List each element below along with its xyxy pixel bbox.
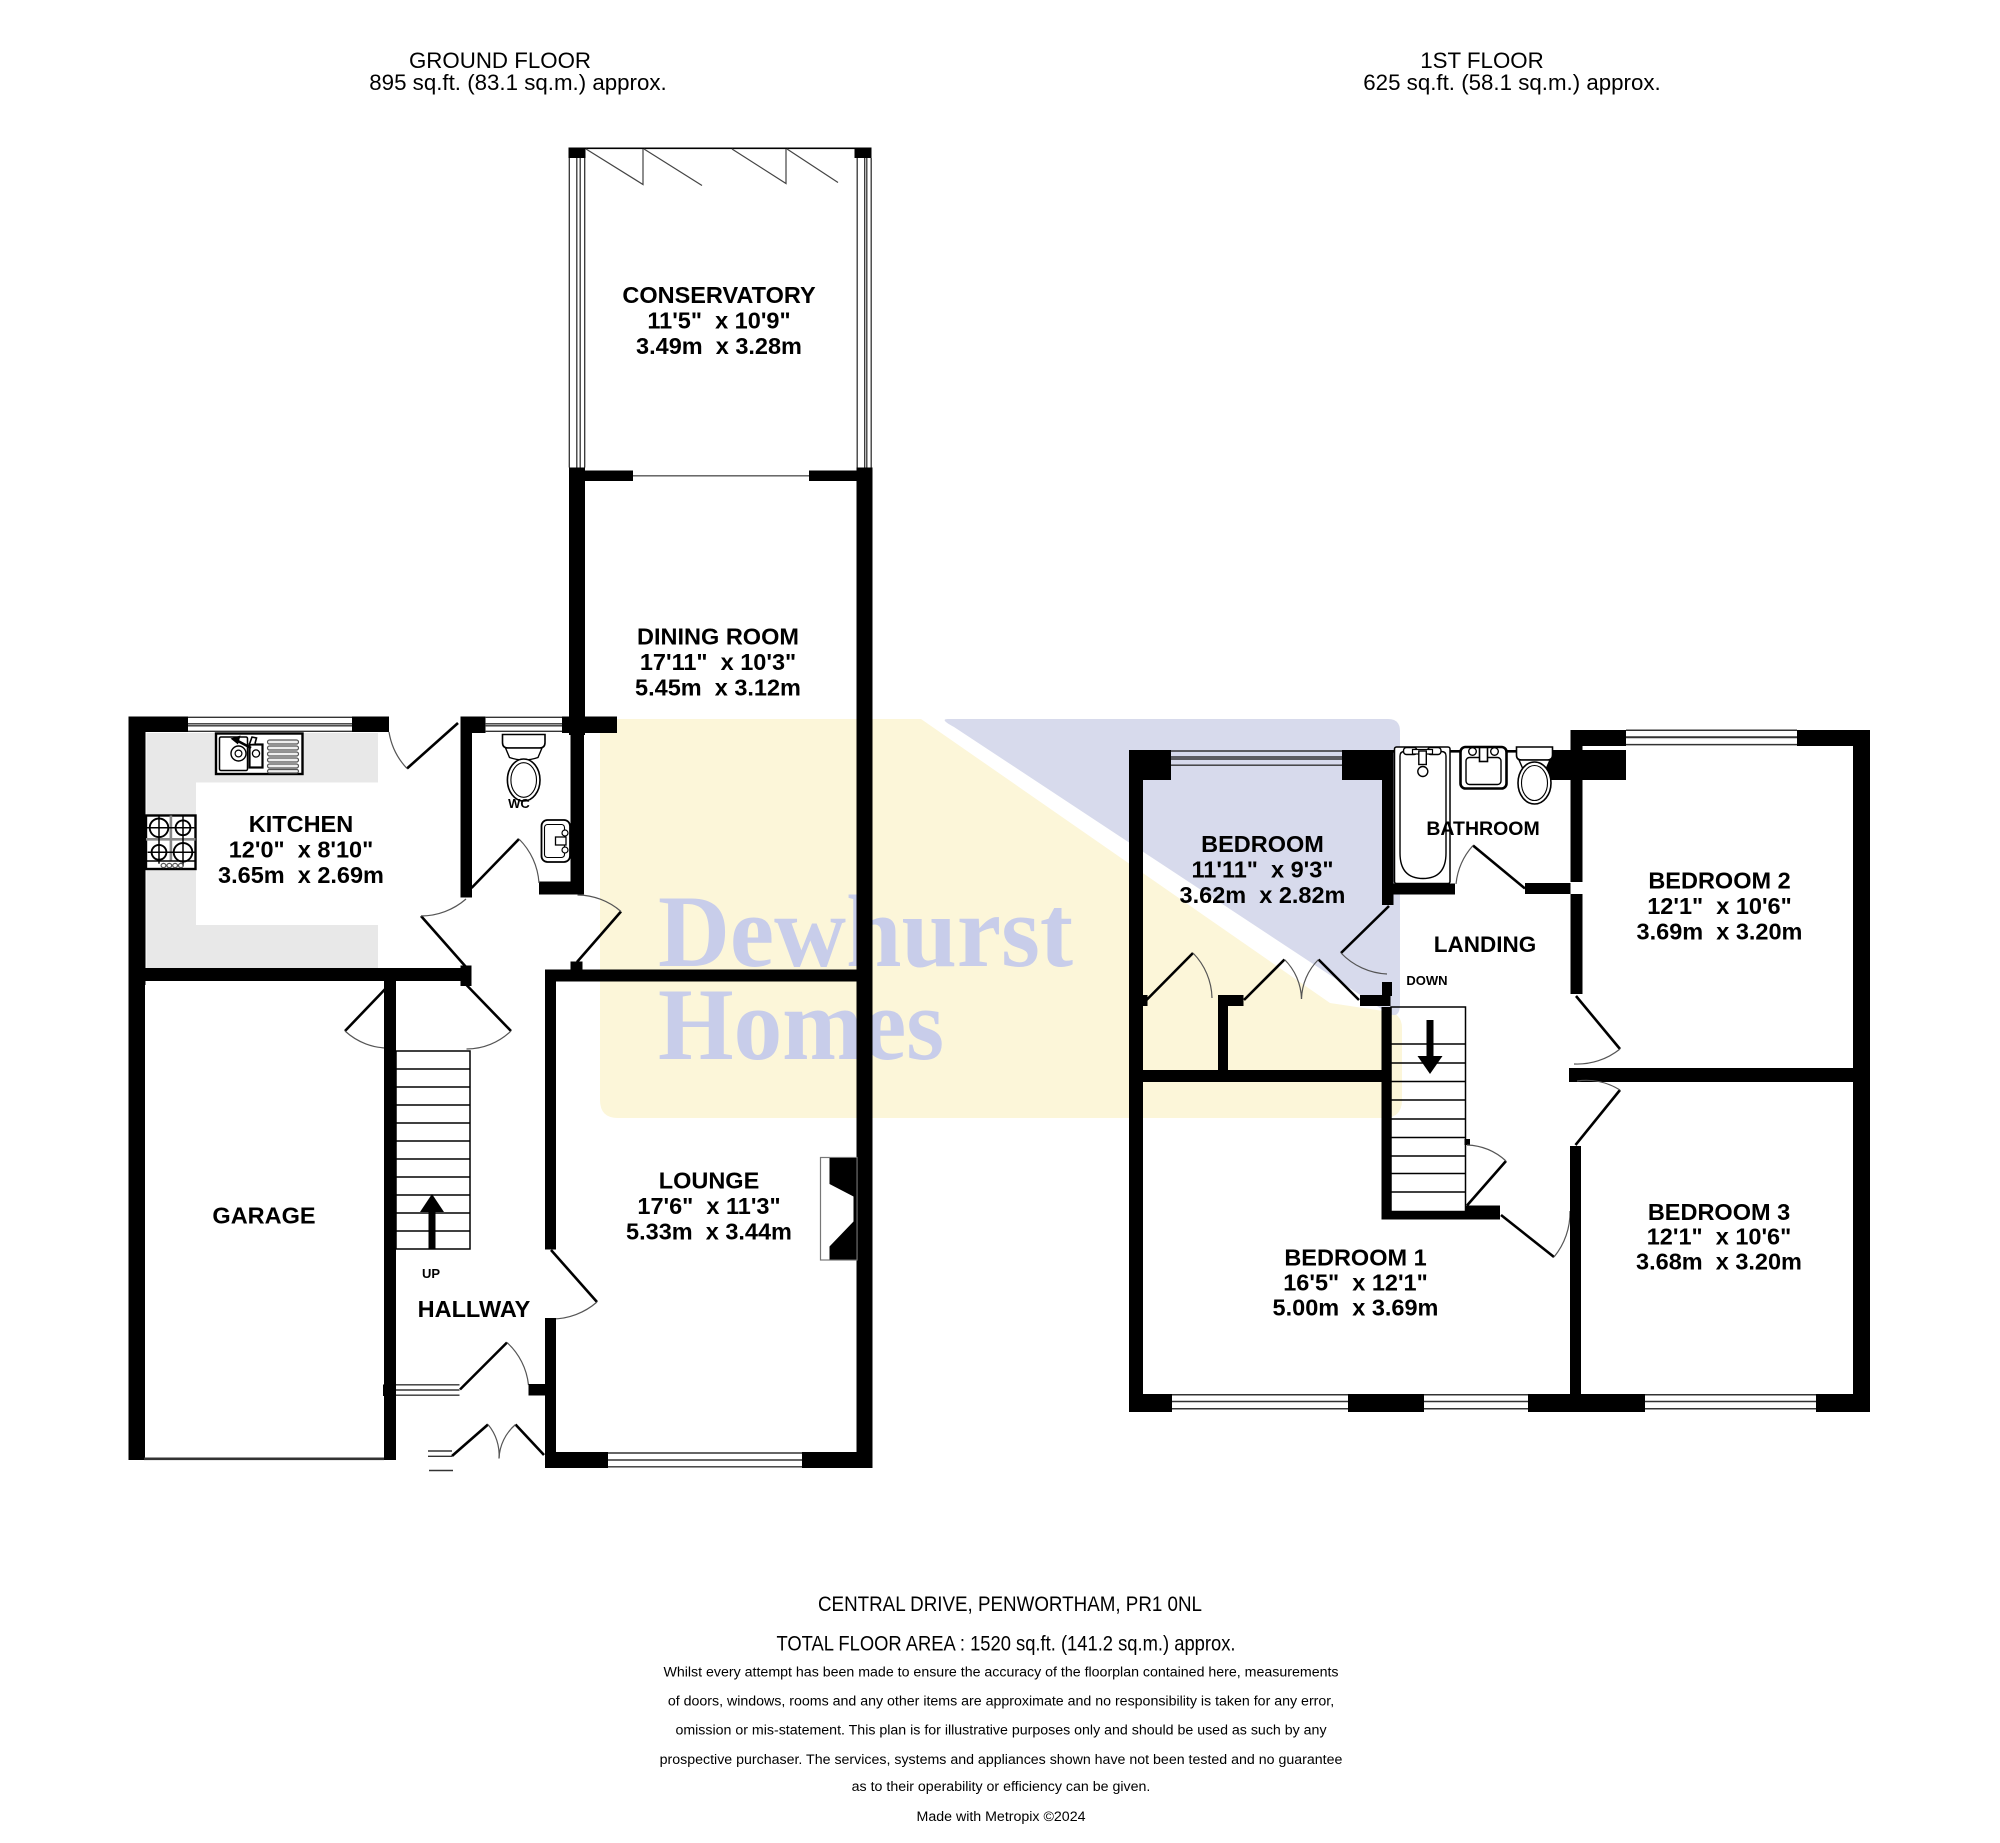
svg-text:UP: UP (422, 1266, 440, 1281)
svg-text:WC: WC (508, 796, 530, 811)
svg-text:TOTAL FLOOR AREA : 1520 sq.ft.: TOTAL FLOOR AREA : 1520 sq.ft. (141.2 sq… (777, 1631, 1236, 1656)
svg-text:CENTRAL DRIVE, PENWORTHAM, PR1: CENTRAL DRIVE, PENWORTHAM, PR1 0NL (818, 1591, 1202, 1616)
svg-text:12'1" x 10'6": 12'1" x 10'6" (1647, 893, 1792, 919)
svg-text:895 sq.ft. (83.1 sq.m.) approx: 895 sq.ft. (83.1 sq.m.) approx. (369, 70, 666, 95)
svg-text:12'0" x 8'10": 12'0" x 8'10" (229, 837, 374, 863)
svg-text:17'6" x 11'3": 17'6" x 11'3" (637, 1193, 780, 1219)
svg-text:Whilst every attempt has been: Whilst every attempt has been made to en… (663, 1665, 1338, 1681)
svg-text:Homes: Homes (658, 968, 944, 1082)
svg-text:as to their operability or eff: as to their operability or efficiency ca… (852, 1779, 1151, 1795)
svg-text:BATHROOM: BATHROOM (1426, 818, 1539, 840)
svg-text:16'5" x 12'1": 16'5" x 12'1" (1283, 1270, 1428, 1296)
svg-text:CONSERVATORY: CONSERVATORY (622, 282, 816, 308)
svg-text:5.33m x 3.44m: 5.33m x 3.44m (626, 1219, 792, 1245)
svg-text:3.68m x 3.20m: 3.68m x 3.20m (1636, 1249, 1802, 1275)
svg-text:DOWN: DOWN (1406, 973, 1447, 988)
svg-text:3.65m x 2.69m: 3.65m x 2.69m (218, 862, 384, 888)
svg-text:BEDROOM 2: BEDROOM 2 (1648, 868, 1790, 894)
svg-text:11'5" x 10'9": 11'5" x 10'9" (647, 308, 790, 334)
svg-text:GARAGE: GARAGE (212, 1203, 315, 1229)
svg-text:5.00m x 3.69m: 5.00m x 3.69m (1273, 1295, 1439, 1321)
svg-text:LANDING: LANDING (1434, 932, 1537, 957)
svg-text:DINING ROOM: DINING ROOM (637, 624, 799, 650)
svg-text:Made with Metropix ©2024: Made with Metropix ©2024 (917, 1809, 1086, 1825)
svg-text:BEDROOM 3: BEDROOM 3 (1648, 1199, 1790, 1225)
svg-text:3.49m x 3.28m: 3.49m x 3.28m (636, 333, 802, 359)
svg-text:12'1" x 10'6": 12'1" x 10'6" (1647, 1224, 1792, 1250)
svg-text:of doors, windows, rooms and a: of doors, windows, rooms and any other i… (668, 1694, 1334, 1710)
svg-text:3.62m x 2.82m: 3.62m x 2.82m (1180, 882, 1346, 908)
svg-text:omission or mis-statement. Thi: omission or mis-statement. This plan is … (675, 1723, 1327, 1739)
svg-text:5.45m x 3.12m: 5.45m x 3.12m (635, 675, 801, 701)
svg-text:BEDROOM 1: BEDROOM 1 (1284, 1245, 1426, 1271)
svg-text:LOUNGE: LOUNGE (659, 1168, 760, 1194)
svg-text:11'11" x 9'3": 11'11" x 9'3" (1192, 857, 1334, 883)
svg-text:HALLWAY: HALLWAY (418, 1296, 531, 1322)
svg-text:prospective purchaser. The ser: prospective purchaser. The services, sys… (660, 1752, 1343, 1768)
svg-text:BEDROOM: BEDROOM (1201, 831, 1324, 857)
svg-text:625 sq.ft. (58.1 sq.m.) approx: 625 sq.ft. (58.1 sq.m.) approx. (1363, 70, 1660, 95)
svg-text:KITCHEN: KITCHEN (249, 811, 353, 837)
svg-text:3.69m x 3.20m: 3.69m x 3.20m (1637, 919, 1803, 945)
svg-text:17'11" x 10'3": 17'11" x 10'3" (640, 649, 796, 675)
